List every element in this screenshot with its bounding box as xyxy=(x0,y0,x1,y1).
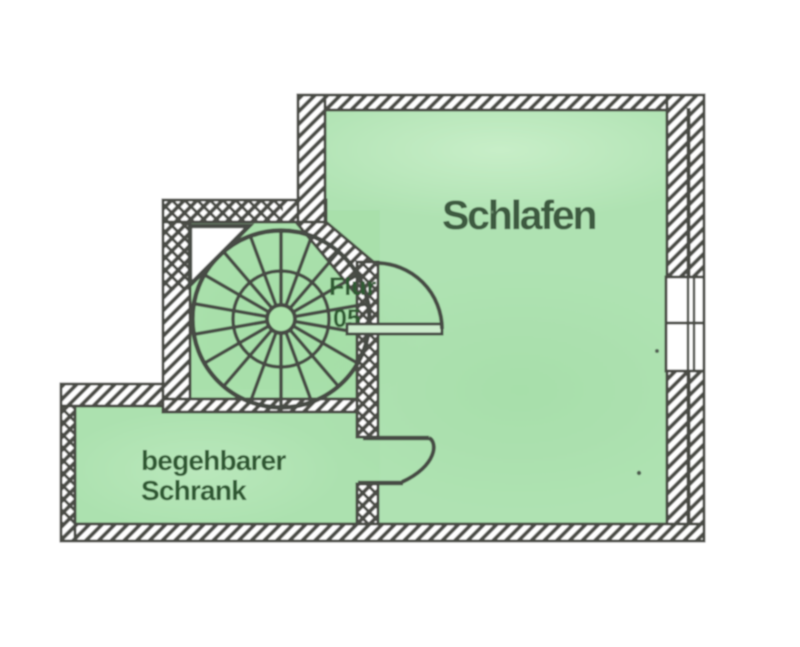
svg-text:Schlafen: Schlafen xyxy=(442,192,595,238)
svg-text:Flur: Flur xyxy=(329,273,376,301)
svg-text:Schrank: Schrank xyxy=(141,475,247,506)
svg-text:begehbarer: begehbarer xyxy=(141,445,286,476)
